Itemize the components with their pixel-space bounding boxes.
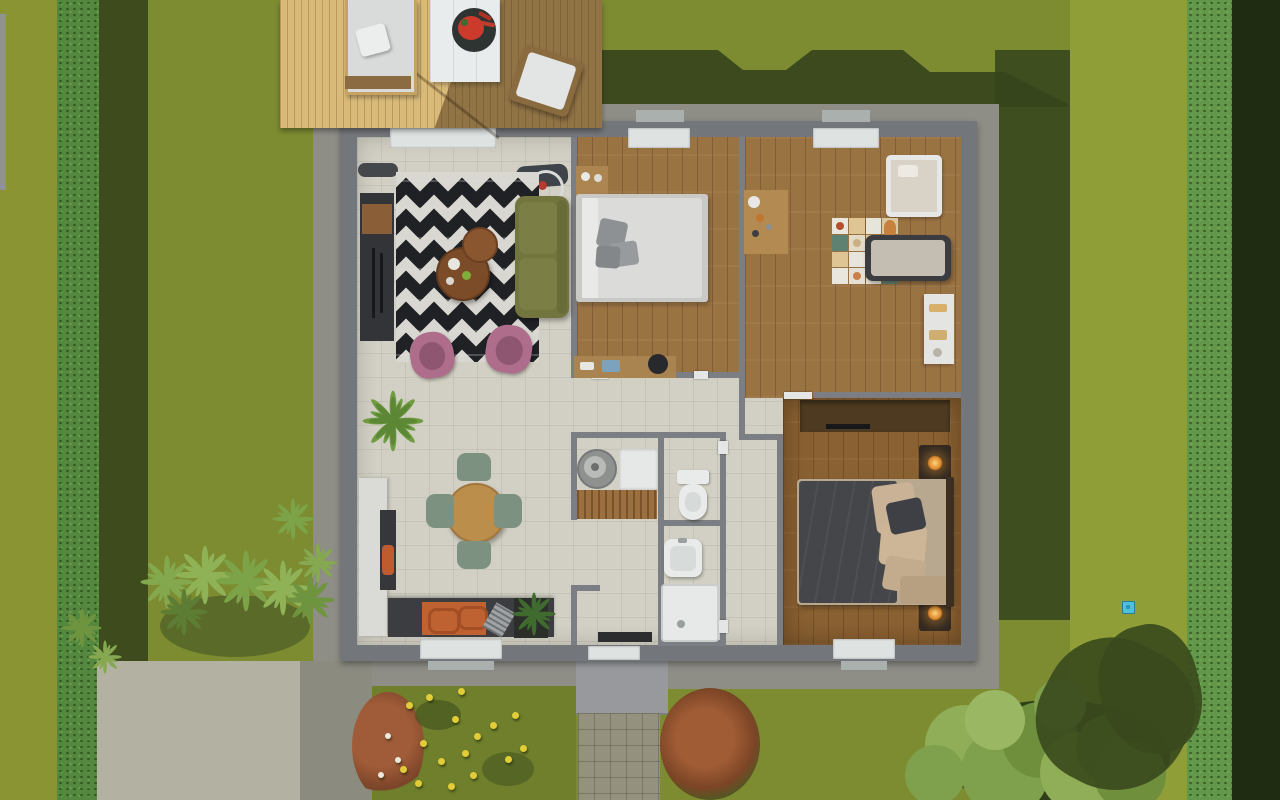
- wall-bedroom1-kids: [739, 137, 745, 378]
- toddler-bed-mattress: [871, 240, 945, 276]
- yellow-flower[interactable]: [458, 688, 465, 695]
- play-mat-cell: [849, 218, 865, 234]
- kids-shelf[interactable]: [924, 294, 954, 364]
- yellow-flower[interactable]: [520, 745, 527, 752]
- stage: [0, 0, 1280, 800]
- tv-cabinet[interactable]: [360, 193, 394, 341]
- tree-foliage[interactable]: [965, 690, 1025, 750]
- window-tab: [822, 110, 870, 122]
- white-flower[interactable]: [385, 733, 391, 739]
- sofa-cushion: [519, 202, 557, 254]
- play-mat-cell: [832, 235, 848, 251]
- play-mat-cell: [832, 268, 848, 284]
- headboard: [946, 477, 954, 607]
- white-flower[interactable]: [378, 772, 384, 778]
- dining-chair-east[interactable]: [494, 494, 522, 528]
- shelf-item: [929, 304, 947, 312]
- nightstand-item: [594, 174, 602, 182]
- armchair-seat: [417, 340, 447, 372]
- wall-bath-east: [720, 432, 726, 646]
- dish-rack: [482, 602, 515, 637]
- pan-outline: [428, 608, 460, 634]
- olive-sofa[interactable]: [515, 196, 569, 318]
- yellow-flower[interactable]: [406, 702, 413, 709]
- baby-crib[interactable]: [886, 155, 942, 217]
- wall-entry-stub-v: [571, 585, 577, 645]
- door-master-bedroom[interactable]: [784, 392, 812, 399]
- shelf-item: [933, 348, 942, 357]
- doormat: [598, 632, 652, 642]
- crib-pillow: [898, 165, 918, 177]
- orange-pan: [382, 545, 394, 575]
- wall-laundry-north: [571, 432, 660, 438]
- play-mat-cell: [832, 218, 848, 234]
- outdoor-armchair-cushion: [515, 51, 577, 110]
- lounger-pillow: [355, 23, 391, 58]
- play-mat-icon: [836, 222, 844, 230]
- nightstand-lamp[interactable]: [919, 445, 951, 481]
- tv-shelf-line: [380, 253, 383, 313]
- window-kids-north[interactable]: [813, 128, 879, 148]
- coffee-table-small[interactable]: [462, 227, 498, 263]
- washer-door: [591, 463, 599, 471]
- fruit-bowl: [462, 271, 471, 280]
- curtain-left[interactable]: [358, 163, 398, 177]
- sofa-cushion: [519, 258, 557, 310]
- entrance-door[interactable]: [588, 646, 640, 660]
- lounger-frame: [345, 76, 411, 89]
- window-kitchen-south[interactable]: [420, 639, 502, 659]
- window-tab: [636, 110, 684, 122]
- window-tab: [841, 661, 887, 670]
- yellow-flower[interactable]: [474, 733, 481, 740]
- dining-chair-west[interactable]: [426, 494, 454, 528]
- plate: [446, 277, 454, 285]
- play-mat-cell: [832, 252, 848, 268]
- watermelon-rind: [461, 19, 468, 26]
- yellow-flower[interactable]: [512, 712, 519, 719]
- master-bed[interactable]: [797, 479, 951, 605]
- faucet: [678, 538, 687, 543]
- foot-blanket: [900, 576, 948, 604]
- wall-bath-north: [658, 432, 726, 438]
- shower-tray[interactable]: [661, 584, 719, 642]
- nightstand[interactable]: [576, 166, 608, 196]
- window-master-south[interactable]: [833, 639, 895, 659]
- master-sideboard[interactable]: [800, 400, 950, 432]
- map-marker-core: [1126, 605, 1130, 609]
- toy-bell[interactable]: [884, 220, 896, 235]
- laundry-cabinet[interactable]: [619, 449, 658, 490]
- kids-desk-toy: [756, 214, 764, 222]
- toddler-bed[interactable]: [865, 235, 951, 281]
- window-living-north[interactable]: [390, 128, 496, 148]
- floor-lamp-shade: [538, 181, 547, 190]
- bed-pillow: [595, 245, 620, 269]
- basin: [670, 546, 696, 571]
- laptop: [602, 360, 620, 372]
- roof-shadow: [602, 50, 1068, 107]
- toilet[interactable]: [679, 484, 707, 520]
- yellow-flower[interactable]: [400, 766, 407, 773]
- sun-lounger[interactable]: [345, 0, 417, 95]
- yellow-flower[interactable]: [462, 750, 469, 757]
- red-bush-right[interactable]: [660, 688, 760, 800]
- gravel-bottom-right: [668, 661, 977, 689]
- kids-desk[interactable]: [744, 190, 788, 254]
- lamp-glow: [927, 605, 943, 621]
- door-bathroom[interactable]: [718, 620, 728, 633]
- play-mat-icon: [853, 272, 861, 280]
- window-bedroom1-north[interactable]: [628, 128, 690, 148]
- red-bush-left[interactable]: [352, 692, 424, 800]
- planter-plant[interactable]: [512, 592, 556, 636]
- desk-bedroom1[interactable]: [574, 356, 676, 378]
- potted-palm[interactable]: [362, 390, 424, 452]
- nightstand-item: [581, 172, 590, 181]
- yellow-flower[interactable]: [505, 756, 512, 763]
- play-mat-cell: [849, 268, 865, 284]
- watermelon-plate[interactable]: [452, 8, 496, 52]
- wall-wc-divider: [658, 520, 726, 526]
- yellow-flower[interactable]: [470, 772, 477, 779]
- sofa-backrest: [557, 200, 567, 314]
- wood-bench[interactable]: [577, 490, 657, 519]
- lamp-glow: [927, 455, 943, 471]
- yellow-flower[interactable]: [415, 780, 422, 787]
- window-tab: [428, 661, 494, 670]
- yellow-flower[interactable]: [438, 758, 445, 765]
- play-mat-cell: [849, 235, 865, 251]
- yellow-flower[interactable]: [426, 694, 433, 701]
- fern-plant[interactable]: [160, 588, 208, 636]
- desk-chair[interactable]: [648, 354, 668, 374]
- tv-cabinet-wood-shelf: [362, 204, 392, 234]
- gravel-right: [977, 104, 999, 689]
- wall-kids-master: [813, 392, 961, 398]
- wall-master-west: [777, 434, 783, 645]
- toilet-tank[interactable]: [677, 470, 709, 484]
- kids-desk-toy: [766, 224, 772, 230]
- play-mat-cell: [849, 252, 865, 268]
- dining-chair-south[interactable]: [457, 541, 491, 569]
- map-marker[interactable]: [1122, 601, 1135, 614]
- shelf-item: [929, 330, 947, 340]
- washbasin[interactable]: [664, 539, 702, 577]
- tv-screen-edge: [372, 248, 375, 318]
- wall-hall-west: [739, 378, 745, 440]
- paved-walkway: [578, 713, 660, 800]
- plate: [448, 258, 460, 270]
- door-wc[interactable]: [718, 441, 728, 454]
- kitchen-cooktop[interactable]: [380, 510, 396, 590]
- fern-plant[interactable]: [272, 498, 314, 540]
- grass-tuft: [415, 700, 461, 730]
- fern-plant[interactable]: [88, 640, 122, 674]
- wall-entry-stub-h: [571, 585, 600, 591]
- tree-foliage[interactable]: [905, 745, 965, 800]
- tv-flat: [826, 424, 870, 429]
- fern-plant[interactable]: [298, 543, 338, 583]
- dining-chair-north[interactable]: [457, 453, 491, 481]
- play-mat-cell: [866, 218, 882, 234]
- yellow-flower[interactable]: [420, 740, 427, 747]
- yellow-flower[interactable]: [490, 722, 497, 729]
- armchair-seat: [494, 334, 525, 367]
- entrance-stoop: [576, 661, 668, 715]
- kids-desk-toy: [748, 196, 760, 208]
- shower-drain: [677, 620, 685, 628]
- yellow-flower[interactable]: [448, 783, 455, 790]
- yellow-flower[interactable]: [452, 716, 459, 723]
- white-flower[interactable]: [395, 757, 401, 763]
- washing-machine[interactable]: [577, 449, 617, 489]
- desk-item: [580, 362, 594, 370]
- kids-desk-toy: [752, 230, 759, 237]
- toilet-seat: [685, 492, 701, 512]
- play-mat-icon: [853, 239, 861, 247]
- double-bed-white[interactable]: [576, 194, 708, 302]
- door-kids-room[interactable]: [694, 371, 708, 379]
